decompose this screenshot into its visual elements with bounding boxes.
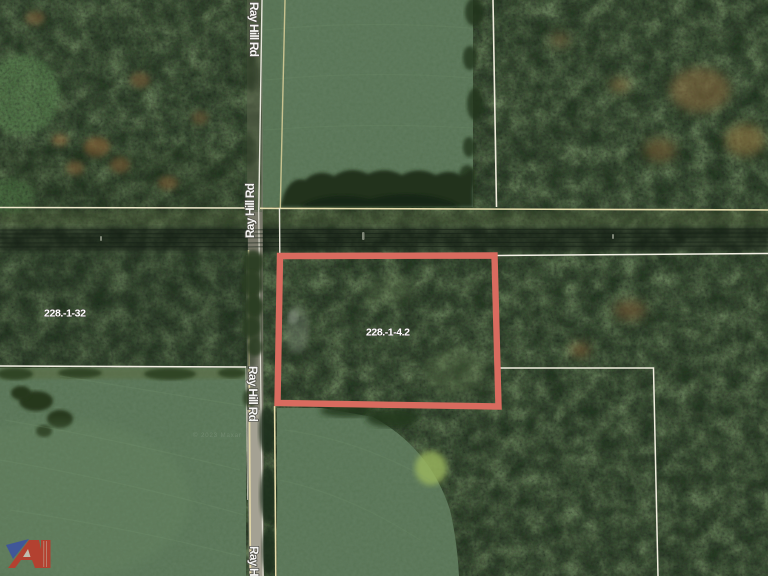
- svg-text:228.-1-4.2: 228.-1-4.2: [366, 327, 410, 339]
- svg-text:Ray Hill Rd: Ray Hill Rd: [247, 2, 261, 57]
- svg-text:Ray Hill Rd: Ray Hill Rd: [247, 546, 261, 576]
- svg-text:© 2023 Maxar: © 2023 Maxar: [193, 432, 241, 439]
- svg-text:Ray Hill Rd: Ray Hill Rd: [246, 366, 260, 422]
- svg-text:228.-1-32: 228.-1-32: [44, 308, 86, 320]
- svg-text:Ray Hill Rd: Ray Hill Rd: [243, 183, 257, 238]
